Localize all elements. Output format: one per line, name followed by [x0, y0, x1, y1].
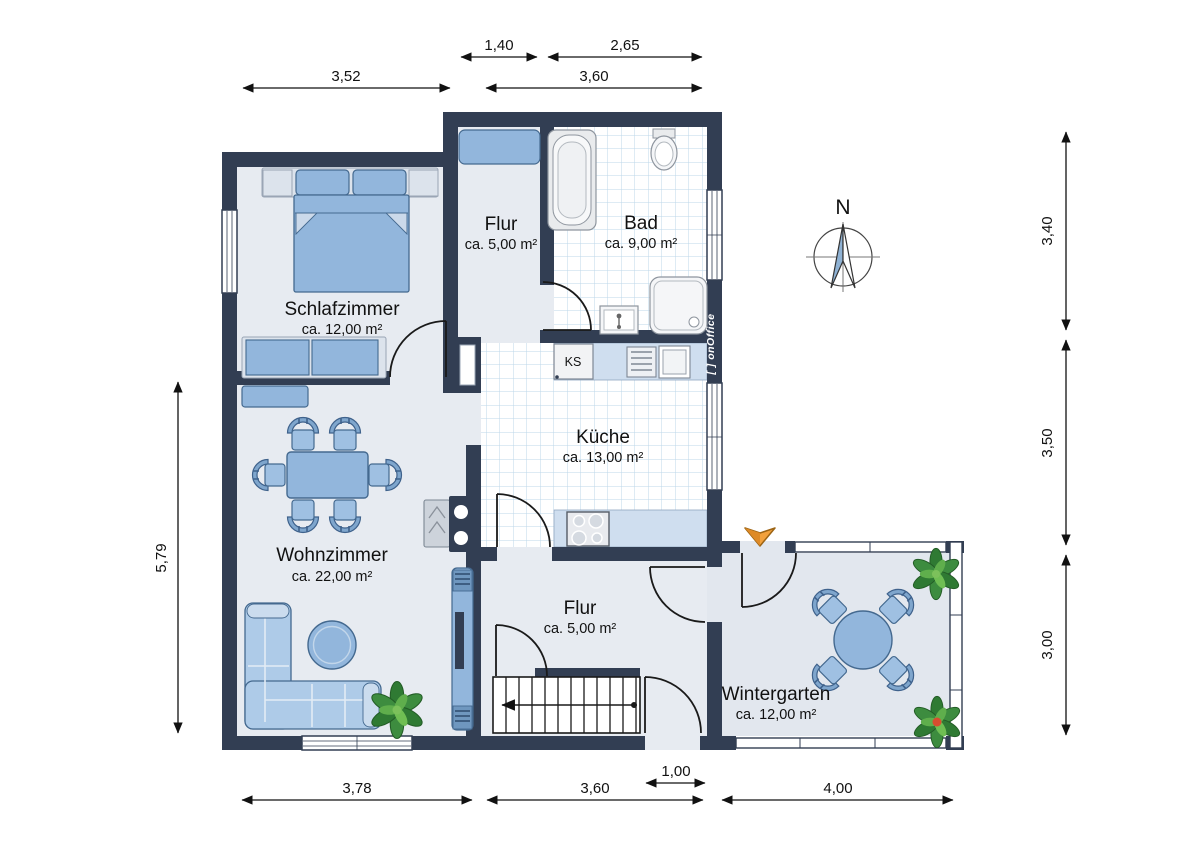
floor-plan-page: Schlafzimmer ca. 12,00 m² Flur ca. 5,00 … — [0, 0, 1200, 848]
svg-text:2,65: 2,65 — [610, 37, 639, 54]
stove-cooktop — [567, 512, 609, 546]
svg-text:4,00: 4,00 — [823, 780, 852, 797]
svg-text:1,40: 1,40 — [484, 37, 513, 54]
svg-text:3,52: 3,52 — [331, 68, 360, 85]
onoffice-watermark: [ ] onOffice — [705, 313, 717, 375]
dining-chair — [288, 418, 319, 451]
dim-right-340: 3,40 — [1039, 132, 1066, 330]
bathtub — [548, 130, 596, 230]
hall-cabinet — [459, 130, 540, 164]
dim-top-265: 2,65 — [548, 37, 702, 57]
window-kueche — [707, 383, 722, 490]
kitchen-sink-unit — [627, 346, 690, 378]
closed-door-leaf — [460, 345, 475, 385]
dining-chair — [369, 460, 402, 491]
svg-text:3,60: 3,60 — [579, 68, 608, 85]
sideboard-wohnzimmer — [242, 386, 308, 407]
svg-text:3,78: 3,78 — [342, 780, 371, 797]
dining-chair — [330, 418, 361, 451]
room-label-flur-bottom: Flur — [564, 598, 597, 619]
room-area-wintergarten: ca. 12,00 m² — [736, 707, 817, 723]
dining-chair — [288, 500, 319, 533]
fridge-label: KS — [565, 355, 582, 369]
dining-chair — [330, 500, 361, 533]
bathroom-sink — [600, 306, 638, 334]
dining-chair — [253, 460, 286, 491]
svg-text:5,79: 5,79 — [153, 543, 170, 572]
coffee-table — [308, 621, 356, 669]
svg-text:3,40: 3,40 — [1039, 216, 1056, 245]
window-bad — [707, 190, 722, 280]
svg-text:1,00: 1,00 — [661, 763, 690, 780]
dim-bottom-378: 3,78 — [242, 780, 472, 800]
room-label-wintergarten: Wintergarten — [722, 684, 831, 705]
dim-right-300: 3,00 — [1039, 555, 1066, 735]
svg-text:3,50: 3,50 — [1039, 428, 1056, 457]
room-label-bad: Bad — [624, 213, 658, 234]
window-schlafzimmer — [222, 210, 237, 293]
dim-bottom-400: 4,00 — [722, 780, 953, 800]
dim-top-360: 3,60 — [486, 68, 702, 88]
room-label-wohnzimmer: Wohnzimmer — [276, 545, 388, 566]
room-area-kueche: ca. 13,00 m² — [563, 450, 644, 466]
stairs — [493, 677, 640, 733]
room-area-flur-top: ca. 5,00 m² — [465, 237, 538, 253]
svg-text:3,60: 3,60 — [580, 780, 609, 797]
room-label-schlafzimmer: Schlafzimmer — [284, 299, 400, 320]
dim-top-140: 1,40 — [461, 37, 537, 57]
room-area-bad: ca. 9,00 m² — [605, 236, 678, 252]
room-label-flur-top: Flur — [485, 214, 518, 235]
room-area-wohnzimmer: ca. 22,00 m² — [292, 569, 373, 585]
room-area-flur-bottom: ca. 5,00 m² — [544, 621, 617, 637]
tv-bench — [452, 568, 473, 730]
fireplace — [424, 496, 474, 552]
tv — [455, 612, 464, 669]
dim-right-350: 3,50 — [1039, 340, 1066, 545]
room-area-schlafzimmer: ca. 12,00 m² — [302, 322, 383, 338]
north-label: N — [835, 196, 850, 219]
shower — [650, 277, 707, 334]
sideboard-schlafzimmer — [242, 337, 386, 378]
dim-bottom-100: 1,00 — [646, 763, 705, 783]
svg-text:3,00: 3,00 — [1039, 630, 1056, 659]
dim-top-352: 3,52 — [243, 68, 450, 88]
toilet — [651, 129, 677, 170]
north-arrow-compass: N — [806, 196, 880, 292]
room-label-kueche: Küche — [576, 427, 630, 448]
dim-left-579: 5,79 — [153, 382, 178, 733]
floor-plan-drawing: Schlafzimmer ca. 12,00 m² Flur ca. 5,00 … — [0, 0, 1200, 848]
